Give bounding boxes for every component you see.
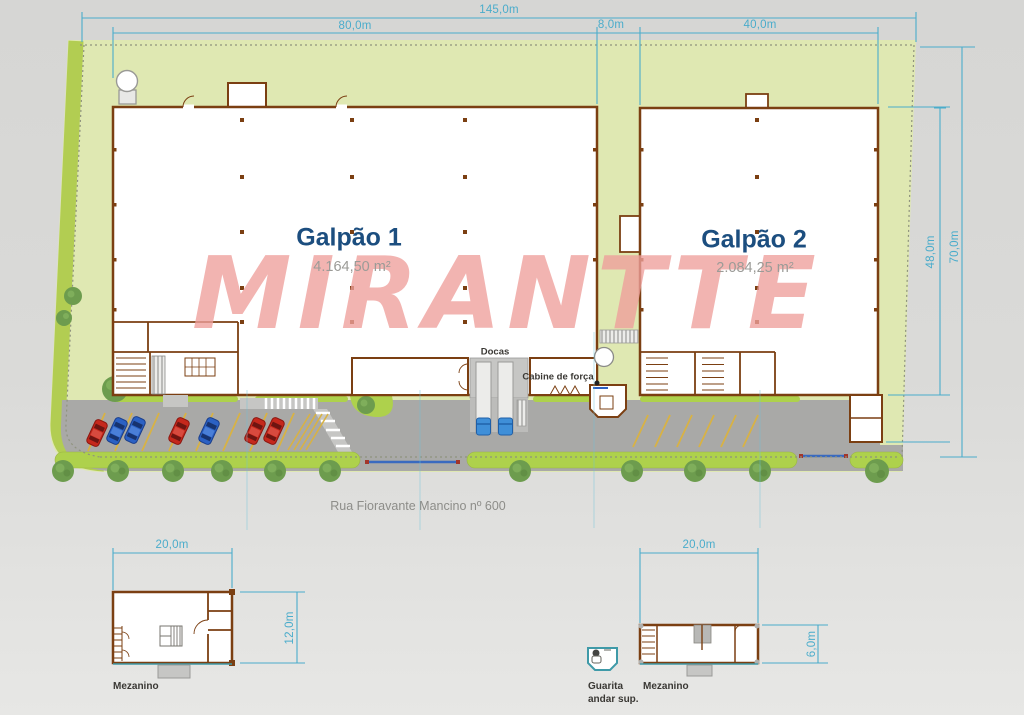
loading-docks xyxy=(470,358,528,435)
dim-building-depth: 48,0m xyxy=(925,236,937,269)
dim-mezz-right-depth: 6,0m xyxy=(806,631,818,657)
water-tank xyxy=(117,71,138,105)
dim-galpao2-width: 40,0m xyxy=(744,19,777,31)
galpao1-area: 4.164,50 m² xyxy=(313,259,390,275)
dim-mezz-left-width: 20,0m xyxy=(156,539,189,551)
cabine-label: Cabine de força xyxy=(522,372,593,383)
galpao1-name: Galpão 1 xyxy=(296,224,402,253)
galpao2-name: Galpão 2 xyxy=(701,226,807,255)
mezzanine-left-plan xyxy=(113,589,235,678)
street-label: Rua Fioravante Mancino nº 600 xyxy=(330,499,506,513)
mezzanine-right-plan xyxy=(639,624,760,677)
guarita-label-line2: andar sup. xyxy=(588,694,639,705)
dim-total-width: 145,0m xyxy=(479,4,519,16)
mezzanine-right-label: Mezanino xyxy=(643,681,689,692)
docas-label: Docas xyxy=(481,347,510,358)
dim-mezz-left-depth: 12,0m xyxy=(284,612,296,645)
dim-galpao1-width: 80,0m xyxy=(339,20,372,32)
galpao2-area: 2.084,25 m² xyxy=(716,260,793,276)
dim-mezz-right-width: 20,0m xyxy=(683,539,716,551)
watermark: MIRANTTE xyxy=(192,244,822,344)
mezzanine-left-label: Mezanino xyxy=(113,681,159,692)
site-plan-page: MIRANTTE 145,0m 80,0m 8,0m 40,0m 48,0m 7… xyxy=(0,0,1024,715)
guarita-label-line1: Guarita xyxy=(588,681,623,692)
dim-site-depth: 70,0m xyxy=(949,231,961,264)
dim-gap-width: 8,0m xyxy=(598,19,624,31)
plan-drawing xyxy=(0,0,1024,715)
guarita-plan-detail xyxy=(588,648,617,670)
